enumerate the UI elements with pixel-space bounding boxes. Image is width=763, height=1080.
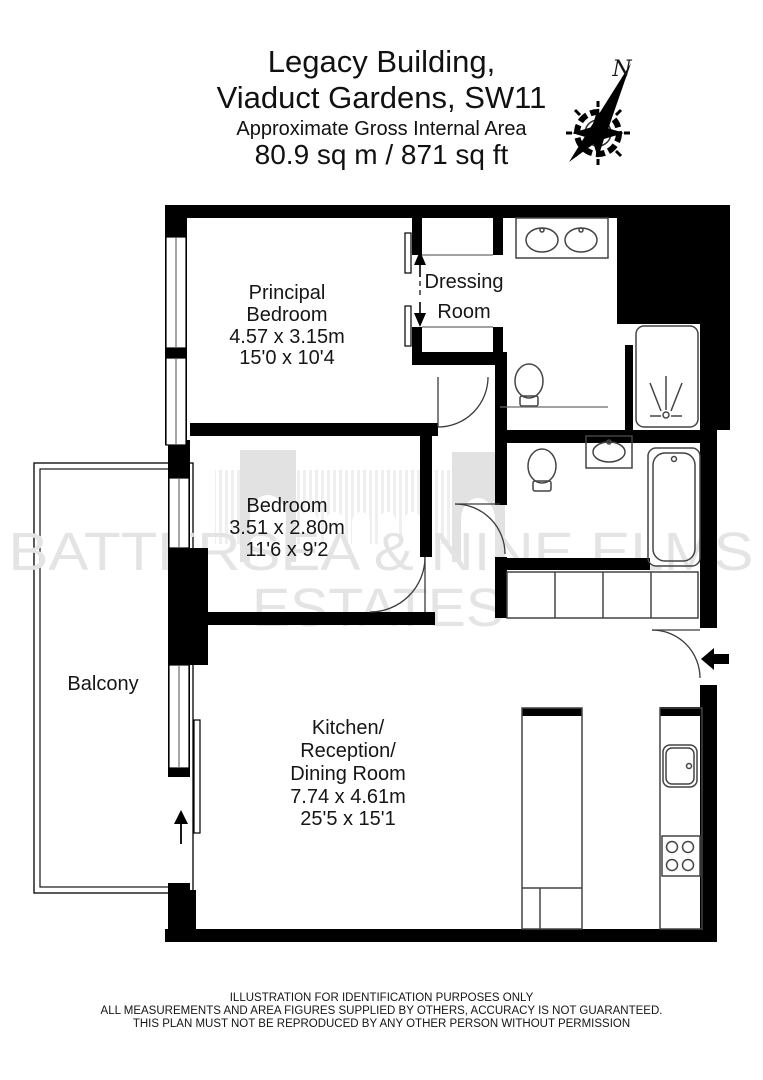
kitchen-label: Kitchen/ [312, 717, 385, 739]
svg-text:Dining Room: Dining Room [290, 763, 406, 785]
watermark-line1: BATTERSEA & NINE ELMS [9, 522, 754, 582]
principal-bedroom-label: Principal [249, 282, 326, 304]
principal-bedroom-dim-metric: 4.57 x 3.15m [229, 326, 345, 348]
sliding-panel [405, 306, 411, 346]
disclaimer-line2: ALL MEASUREMENTS AND AREA FIGURES SUPPLI… [0, 1005, 763, 1017]
bedroom-dim-metric: 3.51 x 2.80m [229, 517, 345, 539]
window-icon [169, 478, 189, 548]
watermark-line2: ESTATES [252, 578, 504, 638]
sink-icon [663, 745, 697, 787]
kitchen-dim-imperial: 25'5 x 15'1 [300, 808, 396, 830]
entrance-door [652, 630, 700, 678]
sliding-panel [405, 233, 411, 273]
toilet-icon [528, 449, 556, 491]
twin-basin-icon [516, 218, 608, 258]
principal-bedroom-door [438, 377, 488, 427]
kitchen-counter [660, 708, 702, 929]
hob-icon [662, 836, 700, 876]
toilet-icon [515, 364, 543, 406]
window-icon [166, 358, 186, 445]
kitchen-island [522, 708, 582, 929]
window-icon [166, 237, 186, 348]
bedroom-dim-imperial: 11'6 x 9'2 [246, 539, 329, 561]
svg-text:Bedroom: Bedroom [246, 304, 327, 326]
window-icon [169, 665, 189, 768]
disclaimer-line1: ILLUSTRATION FOR IDENTIFICATION PURPOSES… [0, 992, 763, 1004]
svg-text:Reception/: Reception/ [300, 740, 396, 762]
principal-bedroom-dim-imperial: 15'0 x 10'4 [239, 347, 335, 369]
compass-icon: N [566, 57, 632, 165]
kitchen-dim-metric: 7.74 x 4.61m [290, 786, 406, 808]
entrance-arrow-icon [701, 648, 729, 670]
floor-plan: BATTERSEA & NINE ELMS ESTATES [0, 0, 763, 1080]
compass-north-label: N [611, 57, 632, 82]
disclaimer-line3: THIS PLAN MUST NOT BE REPRODUCED BY ANY … [0, 1018, 763, 1030]
shower-icon [636, 326, 698, 427]
bedroom-label: Bedroom [246, 495, 327, 517]
balcony-label: Balcony [67, 673, 138, 695]
dressing-room-label: Dressing [425, 271, 504, 293]
sliding-door-leaf [194, 720, 200, 833]
svg-text:Room: Room [437, 301, 490, 323]
balcony-door-opening [167, 777, 192, 883]
